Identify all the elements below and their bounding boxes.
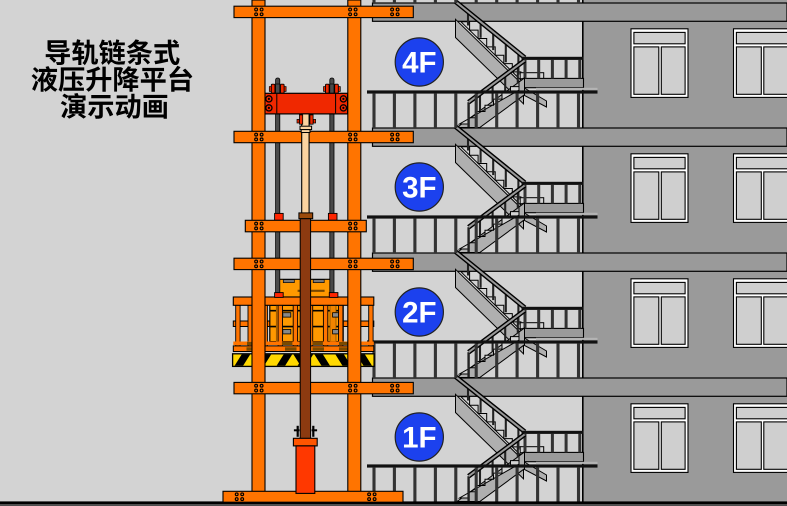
svg-text:1F: 1F	[402, 422, 436, 455]
svg-text:4F: 4F	[402, 47, 436, 80]
svg-text:3F: 3F	[402, 172, 436, 205]
svg-text:2F: 2F	[402, 297, 436, 330]
